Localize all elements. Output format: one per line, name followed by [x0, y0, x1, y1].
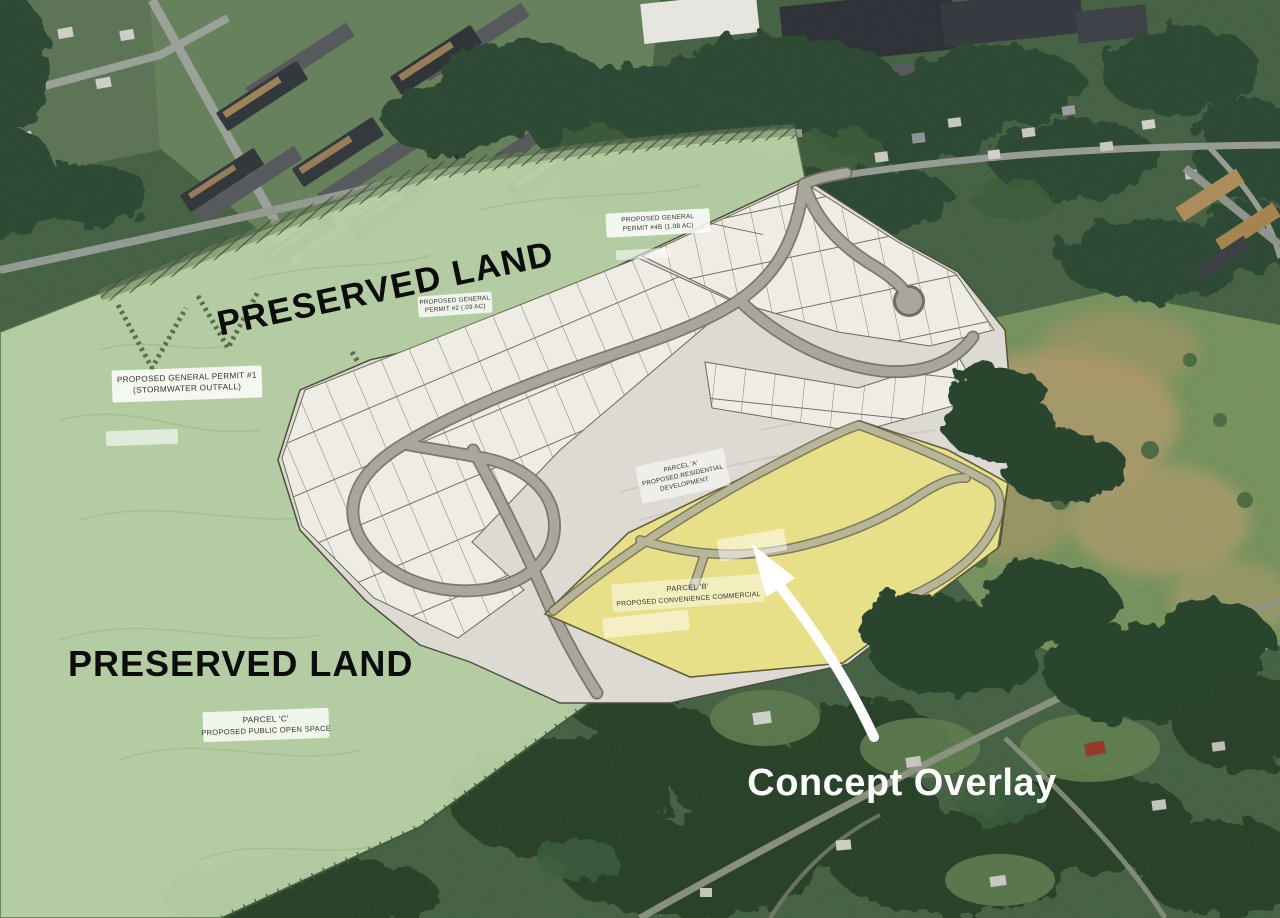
- map-canvas: PROPOSED GENERAL PERMIT #1 (STORMWATER O…: [0, 0, 1280, 918]
- parcel-c-line1: PARCEL 'C': [243, 714, 290, 725]
- permit-1-label: PROPOSED GENERAL PERMIT #1 (STORMWATER O…: [111, 365, 262, 402]
- parcel-c-label: PARCEL 'C' PROPOSED PUBLIC OPEN SPACE: [201, 708, 332, 743]
- aerial-concept-plan-map: PROPOSED GENERAL PERMIT #1 (STORMWATER O…: [0, 0, 1280, 918]
- concept-overlay-label: Concept Overlay: [747, 762, 1057, 804]
- preserved-land-label-lower: PRESERVED LAND: [68, 643, 413, 684]
